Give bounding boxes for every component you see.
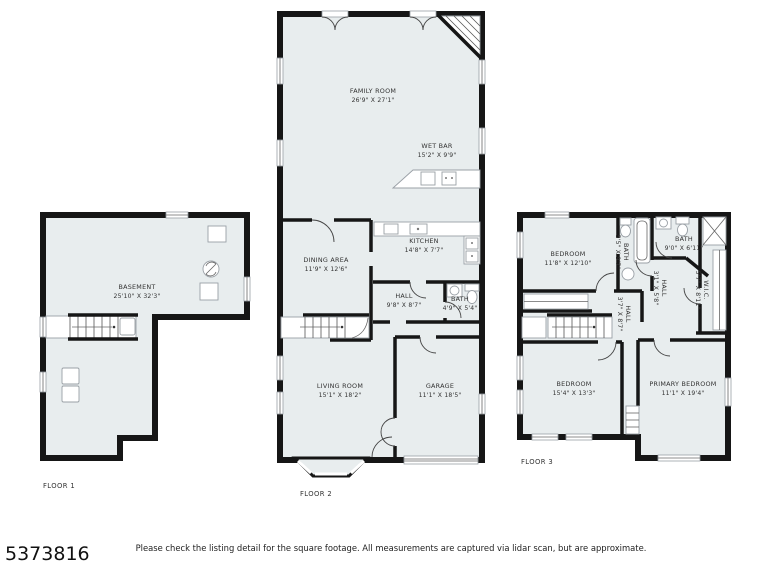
floor-2-stairs — [281, 317, 369, 338]
bathtub-icon — [634, 218, 650, 263]
svg-text:15'4" X 13'3": 15'4" X 13'3" — [553, 390, 596, 397]
svg-text:HALL: HALL — [624, 305, 632, 322]
wic-shelves — [713, 250, 726, 330]
svg-text:3'1" X 5'8": 3'1" X 5'8" — [652, 271, 659, 306]
toilet-icon — [621, 225, 631, 237]
svg-text:11'9" X 12'6": 11'9" X 12'6" — [305, 266, 348, 273]
floor-1-plan: BASEMENT 25'10" X 32'3" FLOOR 1 — [40, 212, 250, 490]
floor-2-label: FLOOR 2 — [300, 490, 332, 498]
closet — [524, 294, 588, 309]
shower-icon — [703, 217, 726, 245]
svg-text:4'9" X 5'4": 4'9" X 5'4" — [443, 305, 478, 312]
closet — [626, 406, 639, 434]
svg-text:11'1" X 19'4": 11'1" X 19'4" — [662, 390, 705, 397]
floorplan-page: BASEMENT 25'10" X 32'3" FLOOR 1 — [0, 0, 768, 576]
bay-window — [295, 458, 367, 476]
floor-2-plan: FAMILY ROOM 26'9" X 27'1" WET BAR 15'2" … — [277, 11, 485, 498]
room-label-basement: BASEMENT — [118, 283, 155, 291]
room-label-wet-bar: WET BAR — [421, 142, 453, 150]
svg-text:3'7" X 8'7": 3'7" X 8'7" — [616, 297, 623, 332]
svg-text:11'8" X 12'10": 11'8" X 12'10" — [545, 260, 592, 267]
electrical-panel-icon — [203, 261, 219, 277]
garage-door — [404, 456, 478, 464]
room-label-primary-bedroom: PRIMARY BEDROOM — [649, 380, 716, 388]
room-label-bath-2: BATH — [675, 235, 693, 243]
furnace-icon — [120, 318, 135, 335]
floor-3-stairs — [522, 317, 612, 338]
svg-text:W.I.C.: W.I.C. — [702, 280, 710, 300]
measurement-disclaimer: Please check the listing detail for the … — [136, 543, 647, 553]
room-label-bedroom-1: BEDROOM — [550, 250, 585, 258]
utility-box-icon — [200, 283, 218, 300]
room-label-dining-area: DINING AREA — [303, 256, 349, 264]
floor-1-label: FLOOR 1 — [43, 482, 75, 490]
svg-text:HALL: HALL — [660, 279, 668, 296]
svg-text:9'8" X 8'7": 9'8" X 8'7" — [387, 302, 422, 309]
svg-text:14'8" X 7'7": 14'8" X 7'7" — [405, 247, 444, 254]
floorplan-canvas: BASEMENT 25'10" X 32'3" FLOOR 1 — [0, 0, 768, 576]
room-dims-basement: 25'10" X 32'3" — [114, 293, 161, 300]
svg-text:9'0" X 6'11": 9'0" X 6'11" — [665, 245, 704, 252]
floor-1-stairs — [46, 315, 138, 339]
floor-3-plan: BEDROOM 11'8" X 12'10" BATH 5'5" X 9'7" … — [517, 212, 731, 466]
utility-box-icon — [208, 226, 226, 242]
svg-text:BATH: BATH — [622, 243, 630, 261]
svg-text:5'5" X 9'7": 5'5" X 9'7" — [614, 235, 621, 270]
room-label-kitchen: KITCHEN — [409, 237, 438, 245]
sink-icon — [622, 268, 634, 280]
room-label-living-room: LIVING ROOM — [317, 382, 363, 390]
svg-text:26'9" X 27'1": 26'9" X 27'1" — [352, 97, 395, 104]
room-label-bath: BATH — [451, 295, 469, 303]
room-label-family-room: FAMILY ROOM — [350, 87, 396, 95]
room-label-hall: HALL — [395, 292, 412, 300]
listing-id: 5373816 — [5, 543, 90, 565]
toilet-icon — [465, 284, 479, 291]
svg-text:15'1" X 18'2": 15'1" X 18'2" — [319, 392, 362, 399]
room-label-bedroom-2: BEDROOM — [556, 380, 591, 388]
room-label-garage: GARAGE — [426, 382, 454, 390]
svg-text:5'7" X 8'11": 5'7" X 8'11" — [694, 271, 701, 310]
svg-text:11'1" X 18'5": 11'1" X 18'5" — [419, 392, 462, 399]
svg-text:15'2" X 9'9": 15'2" X 9'9" — [418, 152, 457, 159]
floor-3-label: FLOOR 3 — [521, 458, 553, 466]
